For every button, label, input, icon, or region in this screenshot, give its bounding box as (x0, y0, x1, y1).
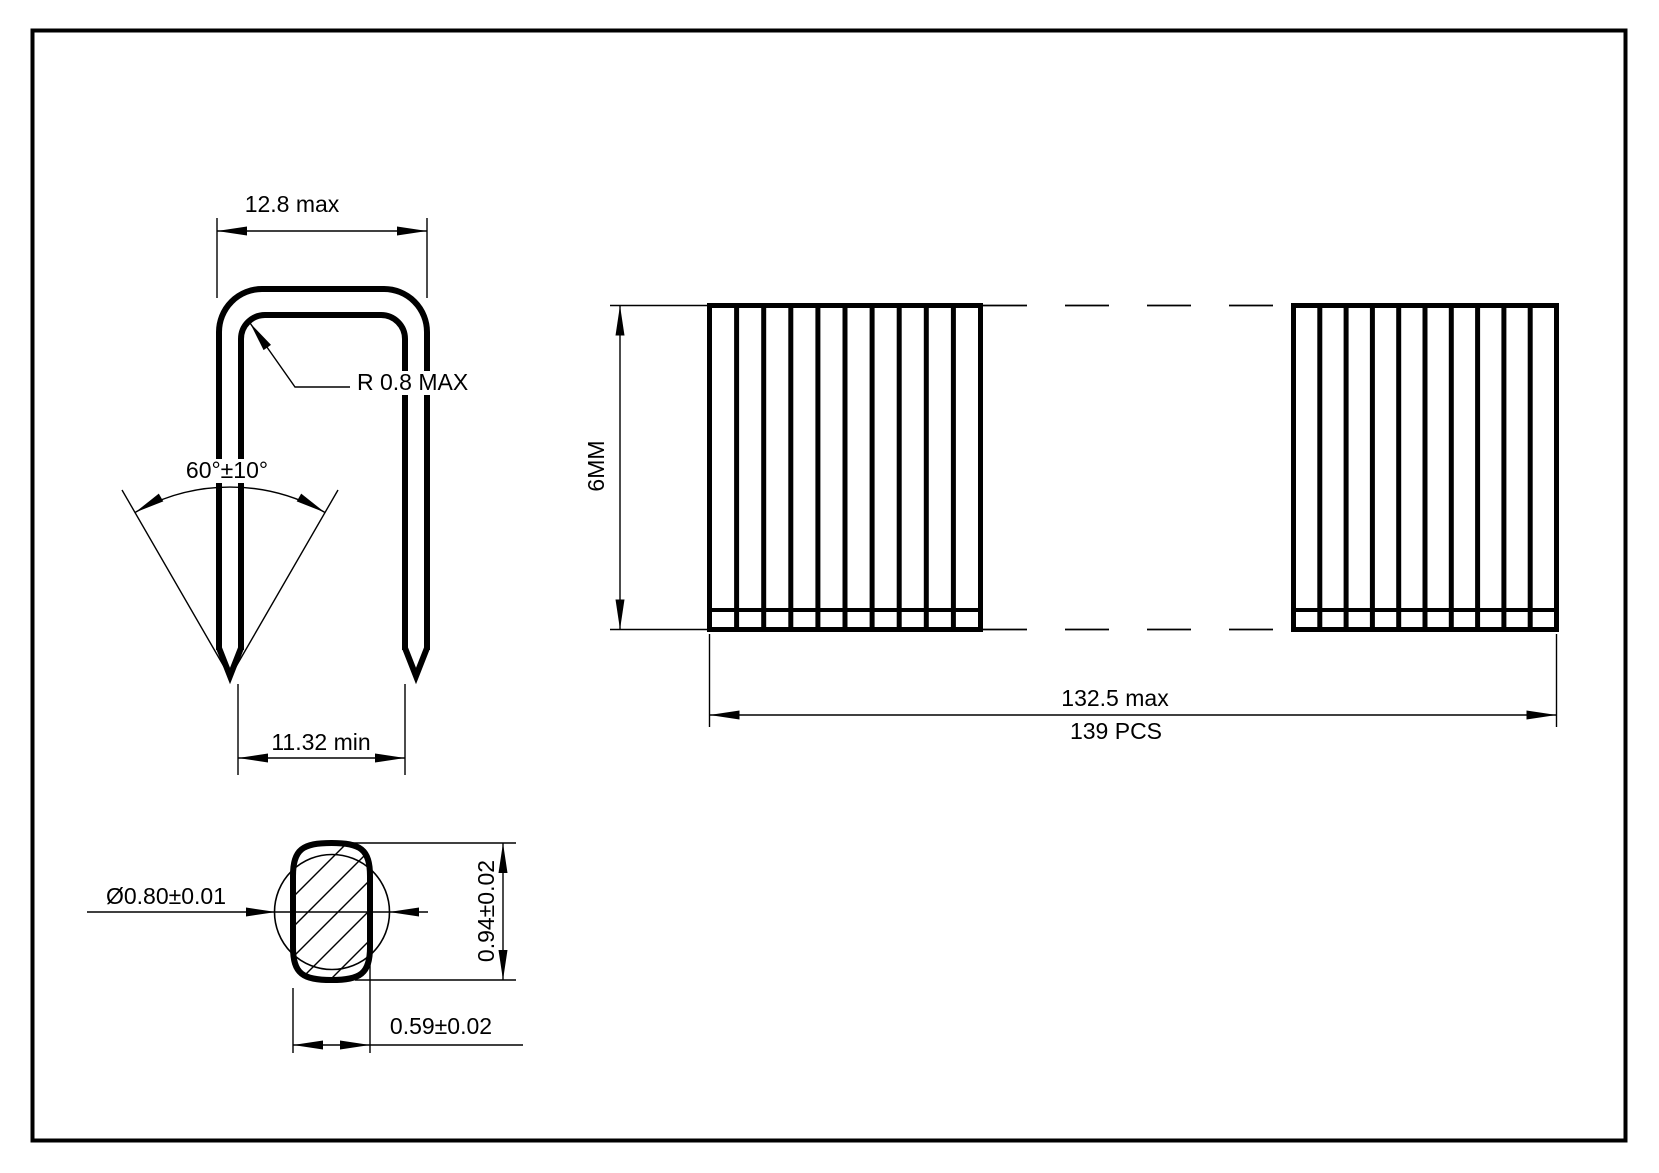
dimension-arrow (375, 754, 405, 763)
angle-arc-arrow (135, 494, 163, 513)
dimension-arrow (340, 1041, 370, 1050)
dimension-arrow (217, 227, 247, 236)
wire-section-view: Ø0.80±0.01 0.94±0.02 0.59±0.02 (87, 830, 540, 1053)
dimension-arrow (616, 306, 625, 336)
strip-length-label: 132.5 max (1061, 685, 1169, 711)
section-width-label: 0.59±0.02 (390, 1013, 492, 1039)
dimension-arrow (246, 908, 276, 917)
staple-front-view: 12.8 max R 0.8 MAX 60°±10° 11.32 min (122, 191, 468, 775)
point-angle-label: 60°±10° (186, 457, 268, 483)
dimension-arrow (499, 950, 508, 980)
dimension-arrow (293, 1041, 323, 1050)
dimension-arrow (389, 908, 419, 917)
staple-right-point (405, 648, 427, 676)
corner-radius-label: R 0.8 MAX (357, 369, 468, 395)
section-height-label: 0.94±0.02 (473, 860, 499, 962)
dimension-arrow (499, 843, 508, 873)
crown-width-label: 12.8 max (245, 191, 340, 217)
wire-diameter-label: Ø0.80±0.01 (106, 883, 226, 909)
leader-arrow (250, 323, 271, 350)
leg-height-label: 6MM (583, 440, 609, 491)
dimension-arrow (397, 227, 427, 236)
dimension-arrow (1527, 711, 1557, 720)
piece-count-label: 139 PCS (1070, 718, 1162, 744)
inner-width-label: 11.32 min (271, 729, 370, 755)
dimension-arrow (710, 711, 740, 720)
staple-left-point (219, 648, 241, 676)
angle-arc-arrow (297, 494, 325, 513)
staple-strip-view: 6MM 132.5 max 139 PCS (583, 306, 1557, 745)
dimension-arrow (238, 754, 268, 763)
technical-drawing-sheet: 12.8 max R 0.8 MAX 60°±10° 11.32 min (0, 0, 1659, 1173)
dimension-arrow (616, 600, 625, 630)
